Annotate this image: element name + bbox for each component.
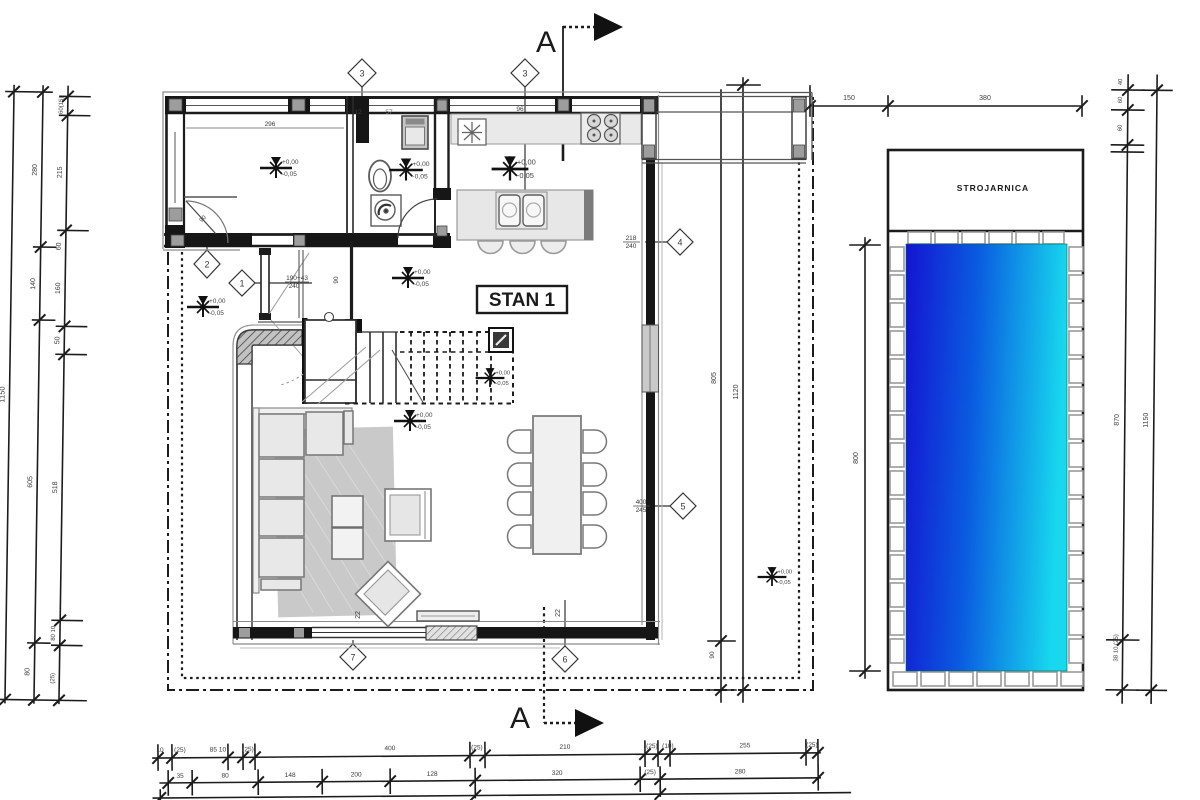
svg-text:35: 35: [177, 773, 185, 780]
svg-text:90: 90: [709, 651, 716, 659]
svg-text:4: 4: [677, 238, 682, 248]
svg-text:60: 60: [1118, 124, 1124, 131]
svg-text:57: 57: [385, 109, 393, 116]
svg-text:22: 22: [355, 611, 362, 619]
svg-text:10: 10: [156, 747, 164, 754]
svg-text:3: 3: [522, 69, 527, 79]
svg-text:38 10 (25): 38 10 (25): [1114, 634, 1120, 661]
svg-text:(25): (25): [50, 673, 56, 684]
svg-text:1150: 1150: [0, 386, 7, 402]
svg-text:160: 160: [55, 282, 62, 294]
svg-text:50: 50: [54, 336, 61, 344]
svg-text:190+43: 190+43: [286, 275, 308, 282]
svg-text:280: 280: [32, 164, 39, 176]
svg-text:80 10: 80 10: [51, 625, 57, 641]
svg-text:800: 800: [853, 452, 860, 464]
svg-text:(25): (25): [646, 743, 658, 750]
svg-text:148: 148: [285, 772, 296, 779]
svg-text:215: 215: [57, 166, 64, 178]
svg-text:STROJARNICA: STROJARNICA: [957, 183, 1029, 193]
svg-text:STAN 1: STAN 1: [489, 290, 556, 311]
svg-text:6: 6: [562, 655, 567, 665]
svg-text:518: 518: [52, 481, 59, 493]
svg-text:400: 400: [384, 745, 395, 752]
svg-text:60: 60: [56, 242, 63, 250]
svg-text:(10): (10): [662, 743, 674, 750]
svg-text:128: 128: [427, 771, 438, 778]
svg-text:280: 280: [735, 768, 746, 775]
svg-text:A: A: [536, 26, 556, 59]
svg-text:12: 12: [354, 109, 362, 116]
svg-text:80: 80: [221, 772, 229, 779]
svg-text:210: 210: [559, 744, 570, 751]
svg-text:296: 296: [265, 121, 276, 128]
svg-text:90: 90: [333, 276, 340, 284]
svg-text:218: 218: [626, 235, 637, 242]
svg-text:40: 40: [1118, 78, 1124, 85]
svg-text:7: 7: [350, 653, 355, 663]
svg-text:140: 140: [30, 278, 37, 290]
svg-text:805: 805: [711, 372, 718, 384]
svg-text:60: 60: [1118, 96, 1124, 103]
svg-text:380: 380: [979, 95, 991, 102]
svg-text:320: 320: [552, 770, 563, 777]
svg-text:22: 22: [555, 609, 562, 617]
svg-text:(25): (25): [174, 747, 186, 754]
svg-text:60(15): 60(15): [59, 97, 65, 114]
svg-text:255: 255: [739, 742, 750, 749]
svg-text:(25): (25): [471, 744, 483, 751]
svg-text:2: 2: [204, 260, 209, 270]
svg-text:400: 400: [636, 499, 647, 506]
svg-text:(25): (25): [806, 742, 818, 749]
svg-text:3: 3: [359, 69, 364, 79]
svg-text:A: A: [510, 702, 530, 735]
svg-text:1: 1: [239, 279, 244, 289]
svg-text:(25): (25): [242, 746, 254, 753]
svg-text:240: 240: [289, 283, 300, 290]
svg-text:200: 200: [351, 771, 362, 778]
svg-text:96: 96: [516, 106, 524, 113]
svg-text:85 10: 85 10: [210, 746, 227, 753]
svg-text:(25): (25): [644, 769, 656, 776]
svg-text:5: 5: [680, 502, 685, 512]
svg-text:150: 150: [843, 95, 855, 102]
svg-text:605: 605: [27, 476, 34, 488]
svg-text:1120: 1120: [733, 384, 740, 399]
svg-text:80: 80: [24, 668, 31, 676]
svg-text:240: 240: [626, 243, 637, 250]
svg-text:1150: 1150: [1143, 413, 1150, 428]
svg-text:245: 245: [636, 507, 647, 514]
svg-text:870: 870: [1114, 414, 1121, 426]
